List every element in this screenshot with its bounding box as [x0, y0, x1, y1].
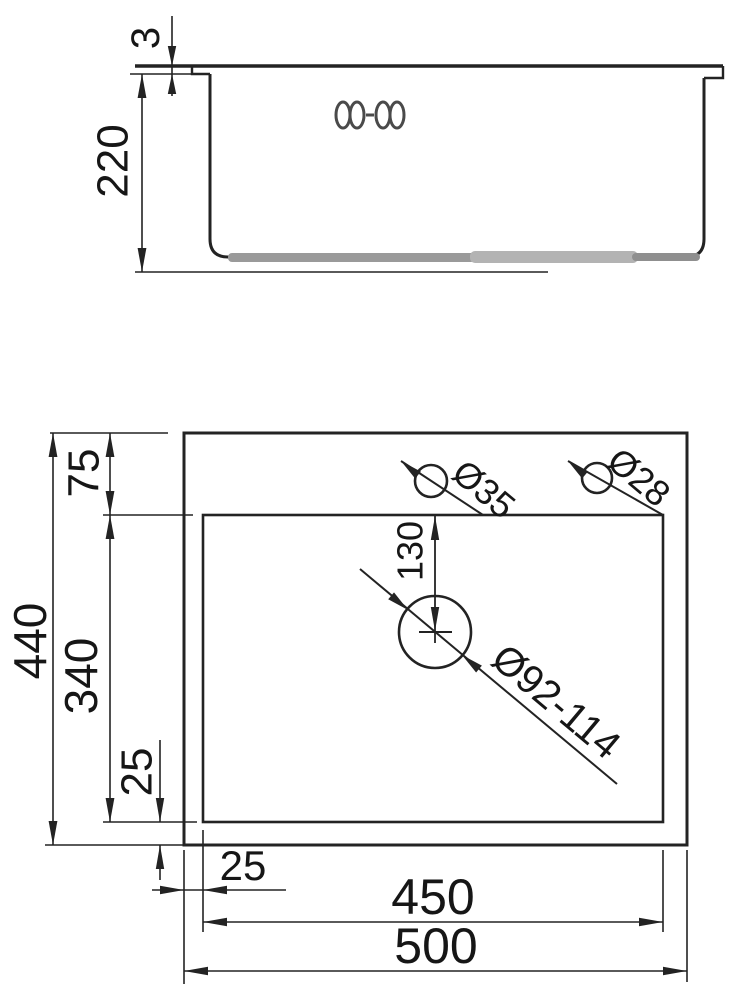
dim-label-overall-width: 440: [4, 603, 56, 680]
dim-label-bowl-width: 340: [55, 638, 107, 715]
shading-segment: [470, 251, 638, 263]
arrowhead: [138, 248, 147, 272]
dim-label-accessory-hole: Ø28: [600, 439, 678, 514]
dim-label-bowl-length: 450: [391, 869, 474, 925]
dim-overall-length: 500: [184, 918, 687, 975]
side-bowl-outline: [210, 74, 704, 257]
dim-bowl-depth: 220: [89, 74, 549, 272]
dim-label-overall-length: 500: [394, 918, 477, 974]
dim-label-bowl-depth: 220: [89, 124, 138, 197]
arrowhead: [106, 515, 115, 539]
dim-bowl-width: 340: [55, 515, 114, 822]
side-right-rim-notch: [704, 66, 723, 78]
logo-shape: [336, 102, 350, 128]
arrowhead: [462, 655, 482, 673]
arrowhead: [639, 918, 663, 926]
arrowhead: [138, 74, 147, 98]
arrowhead: [203, 918, 227, 926]
arrowhead: [49, 433, 58, 457]
dim-label-left-offset: 25: [220, 842, 267, 889]
dim-overall-width: 440: [4, 433, 57, 845]
dim-drain-offset: 130: [390, 516, 440, 643]
drain-hole-group: Ø92-114: [360, 569, 629, 784]
arrowhead: [160, 886, 184, 894]
dim-label-drain-hole: Ø92-114: [483, 636, 628, 768]
side-view: 3 220: [89, 16, 724, 272]
dim-label-bottom-offset: 25: [113, 748, 162, 797]
arrowhead: [106, 798, 115, 822]
logo-shape: [390, 102, 404, 128]
arrowhead: [431, 516, 439, 540]
dim-top-offset: 75: [60, 433, 115, 515]
arrowhead: [184, 967, 208, 975]
shading-segment: [228, 253, 475, 262]
shading-segment: [632, 253, 700, 261]
logo-shape: [376, 102, 390, 128]
arrowhead: [156, 845, 164, 869]
sink-drawing-svg: 3 220 440: [0, 0, 740, 996]
arrowhead: [431, 607, 439, 631]
arrowhead: [156, 798, 164, 822]
dim-rim-thickness: 3: [124, 16, 176, 96]
logo-shape: [350, 102, 364, 128]
brand-logo: [336, 102, 404, 128]
arrowhead: [663, 967, 687, 975]
arrowhead: [49, 821, 58, 845]
accessory-hole-group: Ø28: [568, 439, 678, 515]
technical-drawing-canvas: 3 220 440: [0, 0, 740, 996]
dim-label-rim-thickness: 3: [124, 27, 168, 49]
plan-view: 440 75 340 25 25: [4, 433, 687, 984]
dim-bottom-offset: 25: [113, 740, 165, 880]
dim-left-offset: 25: [152, 842, 286, 894]
arrowhead: [168, 74, 176, 94]
side-bowl-bottom-shading: [228, 251, 700, 263]
arrowhead: [168, 46, 176, 66]
dim-label-drain-offset: 130: [390, 521, 431, 581]
dim-label-top-offset: 75: [60, 449, 109, 498]
